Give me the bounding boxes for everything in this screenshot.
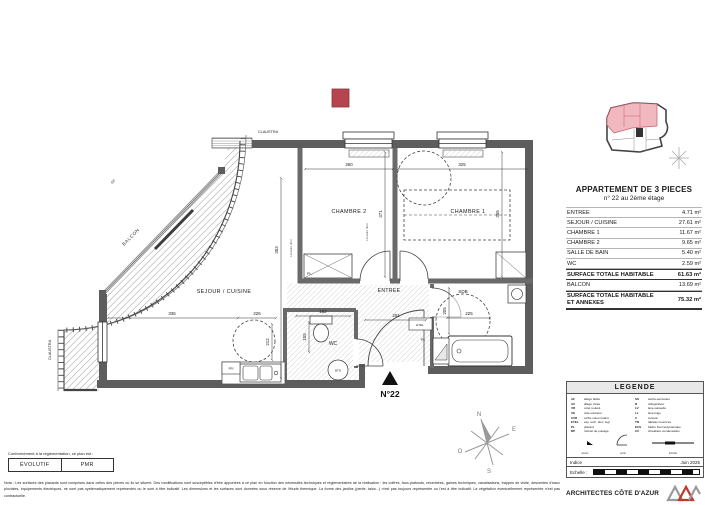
- claustra-label-left: CLAUSTRA: [48, 339, 52, 360]
- svg-text:371: 371: [378, 210, 383, 218]
- etel-label: ETEL: [416, 323, 424, 327]
- room-label-entree: ENTREE: [378, 288, 401, 294]
- radiators: [349, 150, 483, 157]
- svg-text:325: 325: [458, 162, 466, 167]
- footer-note: Nota : Les surfaces des placards sont co…: [4, 480, 560, 499]
- access-symbol-icon: [575, 437, 595, 447]
- gc-label: GC: [110, 178, 117, 185]
- entrance-marker: N°22: [380, 371, 399, 399]
- plan-sheet: 260 325 371 355 353 336 226 212 201 152 …: [0, 0, 705, 505]
- indice-label: Indice: [570, 460, 582, 465]
- scale-symbol-icon: [651, 439, 695, 447]
- water-heater-label: BTD: [335, 369, 342, 373]
- toilet-icon: [310, 316, 332, 324]
- compass-o: O: [458, 449, 463, 455]
- regulatory-stamp: Conformément à la réglementation, ce pla…: [8, 451, 148, 472]
- table-row: WC2.59 m²: [566, 259, 702, 269]
- indice-row: Indice Juin 2025: [567, 457, 703, 466]
- room-label-balcon: BALCON: [121, 227, 140, 246]
- stamp-intro: Conformément à la réglementation, ce pla…: [8, 451, 148, 456]
- svg-text:225: 225: [465, 311, 473, 316]
- legend-symbols: accès porte échelle: [567, 435, 703, 457]
- apartment-subtitle: n° 22 au 2ème étage: [566, 195, 702, 202]
- key-plan-compass-icon: [669, 147, 689, 169]
- legend: LEGENDE AFallège faible AVallège vitrée …: [566, 381, 704, 478]
- table-row-total: SURFACE TOTALE HABITABLE61.63 m²: [566, 269, 702, 280]
- svg-text:205: 205: [442, 307, 447, 315]
- svg-text:336: 336: [168, 311, 176, 316]
- firm-name: ARCHITECTES CÔTE D'AZUR: [566, 490, 659, 497]
- svg-text:152: 152: [319, 309, 327, 314]
- svg-text:355: 355: [495, 210, 500, 218]
- scale-bar: [593, 469, 700, 475]
- table-row: CHAMBRE 29.65 m²: [566, 239, 702, 249]
- room-label-sejour: SEJOUR / CUISINE: [197, 289, 252, 295]
- svg-text:212: 212: [265, 338, 270, 346]
- svg-text:260: 260: [345, 162, 353, 167]
- plan-date: Juin 2025: [680, 460, 700, 465]
- claustra-label-top: CLAUSTRA: [258, 130, 279, 134]
- key-plan-thumbnail: [607, 103, 689, 169]
- washer-icon: [508, 285, 526, 303]
- compass-n: N: [477, 412, 481, 418]
- legend-column-right: SSsèche-serviettes Rréfrigérateur LVlave…: [635, 397, 699, 434]
- svg-text:226: 226: [253, 311, 261, 316]
- compass-rose-icon: N E O S: [458, 412, 516, 475]
- echelle-label: Echelle :: [570, 470, 587, 475]
- fridge-label: FRI: [229, 367, 234, 371]
- room-label-chambre2: CHAMBRE 2: [331, 209, 366, 215]
- compass-s: S: [487, 469, 491, 475]
- red-marker: [332, 89, 349, 107]
- compass-e: E: [512, 427, 516, 433]
- table-row-grand-total: SURFACE TOTALE HABITABLE ET ANNEXES75.32…: [566, 291, 702, 311]
- surface-table: APPARTEMENT DE 3 PIECES n° 22 au 2ème ét…: [566, 185, 702, 310]
- unit-number: N°22: [380, 389, 399, 399]
- door-symbol-icon: [615, 433, 631, 447]
- aca-logo-icon: [666, 484, 702, 502]
- closet-label-entree: PL: [421, 338, 425, 342]
- room-label-wc: WC: [329, 341, 338, 347]
- table-row: SEJOUR / CUISINE27.61 m²: [566, 218, 702, 228]
- table-row: CHAMBRE 111.67 m²: [566, 228, 702, 238]
- svg-text:105: 105: [302, 333, 307, 341]
- svg-text:201: 201: [392, 313, 400, 318]
- stamp-evolutif: ÉVOLUTIF: [9, 459, 62, 471]
- apartment-title: APPARTEMENT DE 3 PIECES: [566, 185, 702, 194]
- stamp-pmr: PMR: [62, 459, 114, 471]
- svg-text:353: 353: [274, 246, 279, 254]
- echelle-row: Echelle :: [567, 466, 703, 477]
- closet-label-chambre2: PL.: [307, 272, 313, 276]
- table-row: ENTREE4.71 m²: [566, 207, 702, 218]
- claustra-screen: [212, 138, 252, 148]
- room-label-chambre1: CHAMBRE 1: [450, 209, 485, 215]
- entrance-marker-icon: [382, 371, 398, 385]
- firm-line: ARCHITECTES CÔTE D'AZUR: [566, 484, 702, 502]
- legend-column-left: AFallège faible AVallège vitrée VRvolet …: [571, 397, 635, 434]
- legend-title: LEGENDE: [567, 382, 703, 394]
- lineaire-label-2: Linéaire libre: [365, 223, 369, 241]
- room-label-sdb: SDB: [458, 289, 467, 294]
- table-row: SALLE DE BAIN5.40 m²: [566, 249, 702, 259]
- table-row: BALCON13.69 m²: [566, 280, 702, 290]
- lineaire-label-1: Linéaire libre: [289, 239, 293, 257]
